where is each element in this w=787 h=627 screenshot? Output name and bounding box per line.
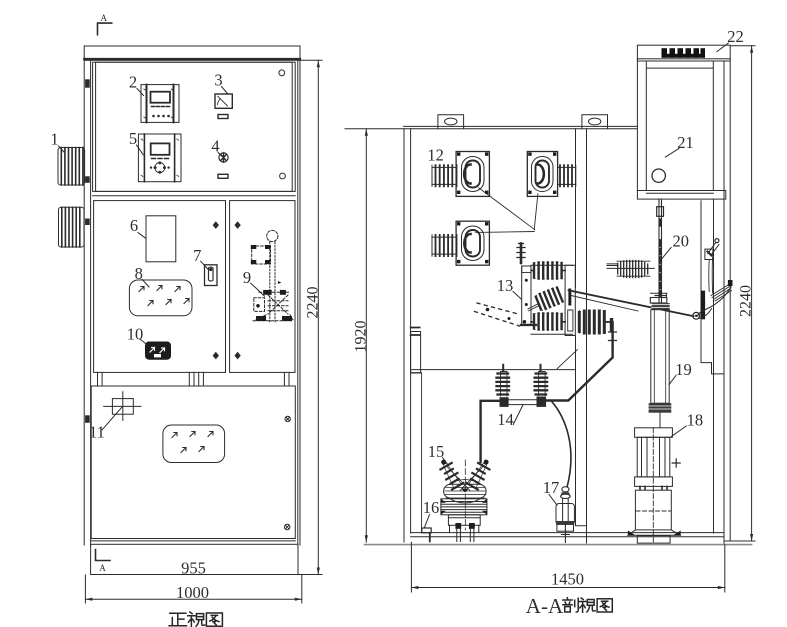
svg-text:18: 18: [687, 411, 704, 430]
svg-text:15: 15: [428, 442, 445, 461]
svg-text:6: 6: [130, 216, 138, 235]
svg-text:22: 22: [727, 27, 744, 46]
svg-text:8: 8: [135, 264, 143, 283]
svg-text:20: 20: [672, 232, 689, 251]
svg-text:5: 5: [129, 129, 137, 148]
svg-text:1920: 1920: [353, 321, 370, 353]
svg-text:1: 1: [50, 130, 58, 149]
svg-text:10: 10: [127, 325, 144, 344]
svg-text:A: A: [101, 13, 108, 23]
svg-text:14: 14: [497, 410, 514, 429]
svg-text:17: 17: [543, 478, 560, 497]
svg-text:11: 11: [89, 423, 105, 442]
svg-text:1000: 1000: [176, 583, 209, 602]
svg-text:16: 16: [423, 498, 440, 517]
svg-text:12: 12: [427, 145, 444, 164]
svg-text:1450: 1450: [551, 570, 584, 589]
svg-text:2240: 2240: [305, 287, 322, 319]
svg-text:21: 21: [677, 133, 694, 152]
svg-text:A: A: [99, 563, 106, 573]
svg-text:2: 2: [129, 73, 137, 92]
svg-text:A-A: A-A: [526, 594, 564, 618]
svg-text:9: 9: [243, 268, 251, 287]
svg-text:13: 13: [497, 276, 514, 295]
svg-text:2240: 2240: [738, 285, 755, 317]
svg-text:955: 955: [181, 559, 206, 578]
svg-text:19: 19: [675, 360, 692, 379]
svg-text:7: 7: [193, 246, 201, 265]
